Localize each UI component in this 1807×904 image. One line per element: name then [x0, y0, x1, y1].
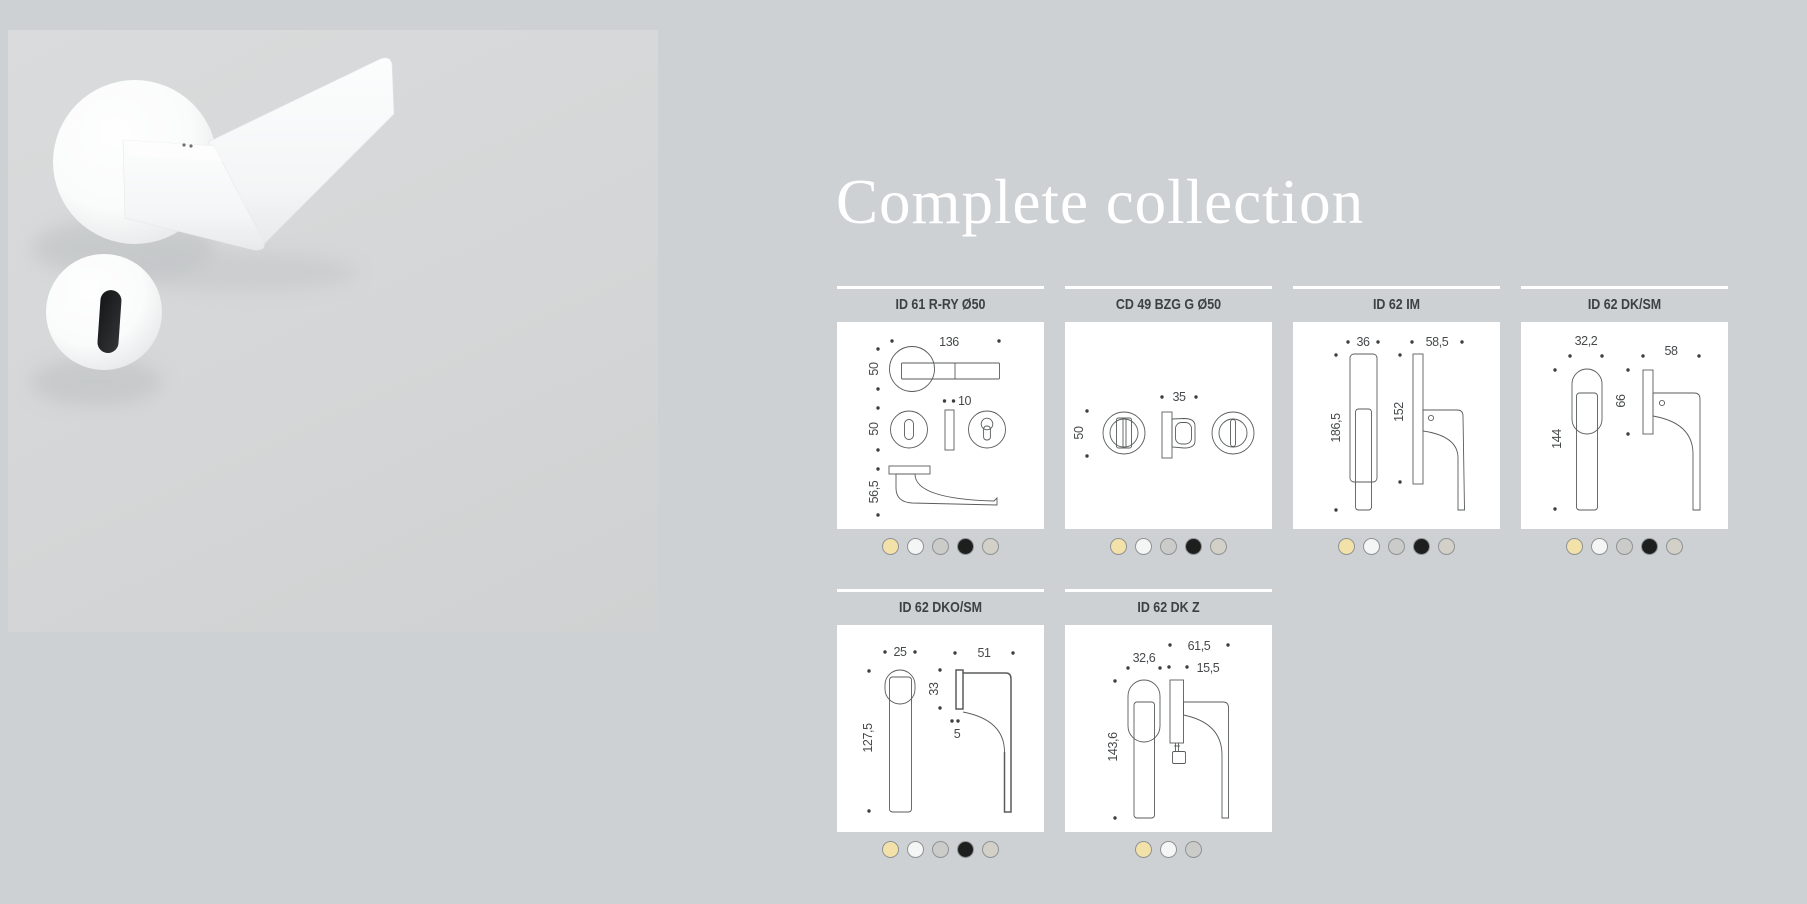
product-code: ID 62 DK/SM [1539, 296, 1711, 317]
finish-swatch-gray [1160, 538, 1177, 555]
product-row-2: ID 62 DKO/SM 25 51 127,5 33 5 [837, 589, 1272, 858]
svg-text:25: 25 [893, 645, 907, 659]
product-card-id62-im: ID 62 IM 36 58,5 186,5 152 [1293, 286, 1500, 555]
lever-handle-diagram: 136 50 50 56,5 10 [837, 322, 1044, 529]
finish-swatch-gray [1185, 841, 1202, 858]
product-card-id62-dko-sm: ID 62 DKO/SM 25 51 127,5 33 5 [837, 589, 1044, 858]
finish-swatch-cream [882, 538, 899, 555]
finish-swatches [1065, 841, 1272, 858]
hero-product-photo [8, 30, 658, 632]
svg-text:50: 50 [867, 422, 881, 436]
product-code: ID 62 DK Z [1083, 599, 1255, 620]
card-rule [1065, 589, 1272, 592]
product-card-cd49-bzg: CD 49 BZG G Ø50 35 50 [1065, 286, 1272, 555]
svg-text:35: 35 [1172, 390, 1186, 404]
svg-text:32,6: 32,6 [1133, 651, 1156, 665]
svg-text:61,5: 61,5 [1188, 639, 1211, 653]
svg-text:127,5: 127,5 [861, 723, 875, 753]
finish-swatch-gray [1616, 538, 1633, 555]
card-rule [1293, 286, 1500, 289]
dimension-drawing-box: 35 50 [1065, 322, 1272, 529]
finish-swatches [1293, 538, 1500, 555]
svg-text:143,6: 143,6 [1106, 732, 1120, 762]
flush-window-handle-diagram: 36 58,5 186,5 152 [1293, 322, 1500, 529]
svg-text:58: 58 [1664, 344, 1678, 358]
svg-text:66: 66 [1614, 394, 1628, 408]
finish-swatch-cream [1110, 538, 1127, 555]
svg-text:58,5: 58,5 [1426, 335, 1449, 349]
svg-text:33: 33 [927, 682, 941, 696]
svg-text:50: 50 [867, 362, 881, 376]
product-card-id61-r-ry: ID 61 R-RY Ø50 136 50 50 56,5 10 [837, 286, 1044, 555]
window-handle-diagram: 32,2 58 144 66 [1521, 322, 1728, 529]
svg-text:10: 10 [958, 394, 972, 408]
finish-swatch-greige [982, 841, 999, 858]
svg-text:32,2: 32,2 [1575, 334, 1598, 348]
product-code: ID 62 DKO/SM [855, 599, 1027, 620]
svg-text:15,5: 15,5 [1197, 661, 1220, 675]
finish-swatch-black [957, 538, 974, 555]
finish-swatch-black [1641, 538, 1658, 555]
svg-text:36: 36 [1356, 335, 1370, 349]
finish-swatch-cream [882, 841, 899, 858]
finish-swatches [837, 538, 1044, 555]
finish-swatch-white [1591, 538, 1608, 555]
card-rule [1065, 286, 1272, 289]
finish-swatches [837, 841, 1044, 858]
finish-swatch-gray [1388, 538, 1405, 555]
screw-mark [182, 143, 185, 146]
finish-swatch-greige [1210, 538, 1227, 555]
finish-swatch-greige [1438, 538, 1455, 555]
svg-text:136: 136 [939, 335, 959, 349]
page-title: Complete collection [836, 168, 1364, 237]
product-row-1: ID 61 R-RY Ø50 136 50 50 56,5 10 [837, 286, 1728, 555]
svg-text:50: 50 [1072, 426, 1086, 440]
finish-swatch-greige [982, 538, 999, 555]
finish-swatch-white [1363, 538, 1380, 555]
svg-text:5: 5 [954, 727, 961, 741]
finish-swatch-cream [1135, 841, 1152, 858]
product-card-id62-dk-z: ID 62 DK Z 32,6 61,5 15,5 143,6 [1065, 589, 1272, 858]
dimension-drawing-box: 32,2 58 144 66 [1521, 322, 1728, 529]
svg-text:152: 152 [1392, 402, 1406, 422]
finish-swatch-black [1185, 538, 1202, 555]
finish-swatches [1065, 538, 1272, 555]
dimension-drawing-box: 32,6 61,5 15,5 143,6 [1065, 625, 1272, 832]
product-code: ID 62 IM [1311, 296, 1483, 317]
product-code: CD 49 BZG G Ø50 [1083, 296, 1255, 317]
card-rule [837, 589, 1044, 592]
svg-text:56,5: 56,5 [867, 480, 881, 503]
finish-swatch-white [907, 841, 924, 858]
finish-swatch-cream [1566, 538, 1583, 555]
card-rule [1521, 286, 1728, 289]
lockable-window-handle-diagram: 32,6 61,5 15,5 143,6 [1065, 625, 1272, 832]
finish-swatch-gray [932, 538, 949, 555]
svg-text:186,5: 186,5 [1329, 413, 1343, 443]
dimension-drawing-box: 136 50 50 56,5 10 [837, 322, 1044, 529]
finish-swatch-greige [1666, 538, 1683, 555]
dimension-drawing-box: 36 58,5 186,5 152 [1293, 322, 1500, 529]
dimension-drawing-box: 25 51 127,5 33 5 [837, 625, 1044, 832]
finish-swatch-black [1413, 538, 1430, 555]
svg-text:144: 144 [1550, 429, 1564, 449]
finish-swatch-cream [1338, 538, 1355, 555]
finish-swatch-gray [932, 841, 949, 858]
finish-swatch-white [907, 538, 924, 555]
finish-swatch-white [1160, 841, 1177, 858]
product-code: ID 61 R-RY Ø50 [855, 296, 1027, 317]
keyhole [97, 289, 122, 353]
finish-swatch-black [957, 841, 974, 858]
card-rule [837, 286, 1044, 289]
finish-swatches [1521, 538, 1728, 555]
finish-swatch-white [1135, 538, 1152, 555]
thumbturn-diagram: 35 50 [1065, 322, 1272, 529]
window-handle-diagram: 25 51 127,5 33 5 [837, 625, 1044, 832]
svg-text:51: 51 [977, 646, 991, 660]
door-handle-photo-illustration [8, 30, 658, 632]
screw-mark [189, 144, 192, 147]
product-card-id62-dk-sm: ID 62 DK/SM 32,2 58 144 66 [1521, 286, 1728, 555]
